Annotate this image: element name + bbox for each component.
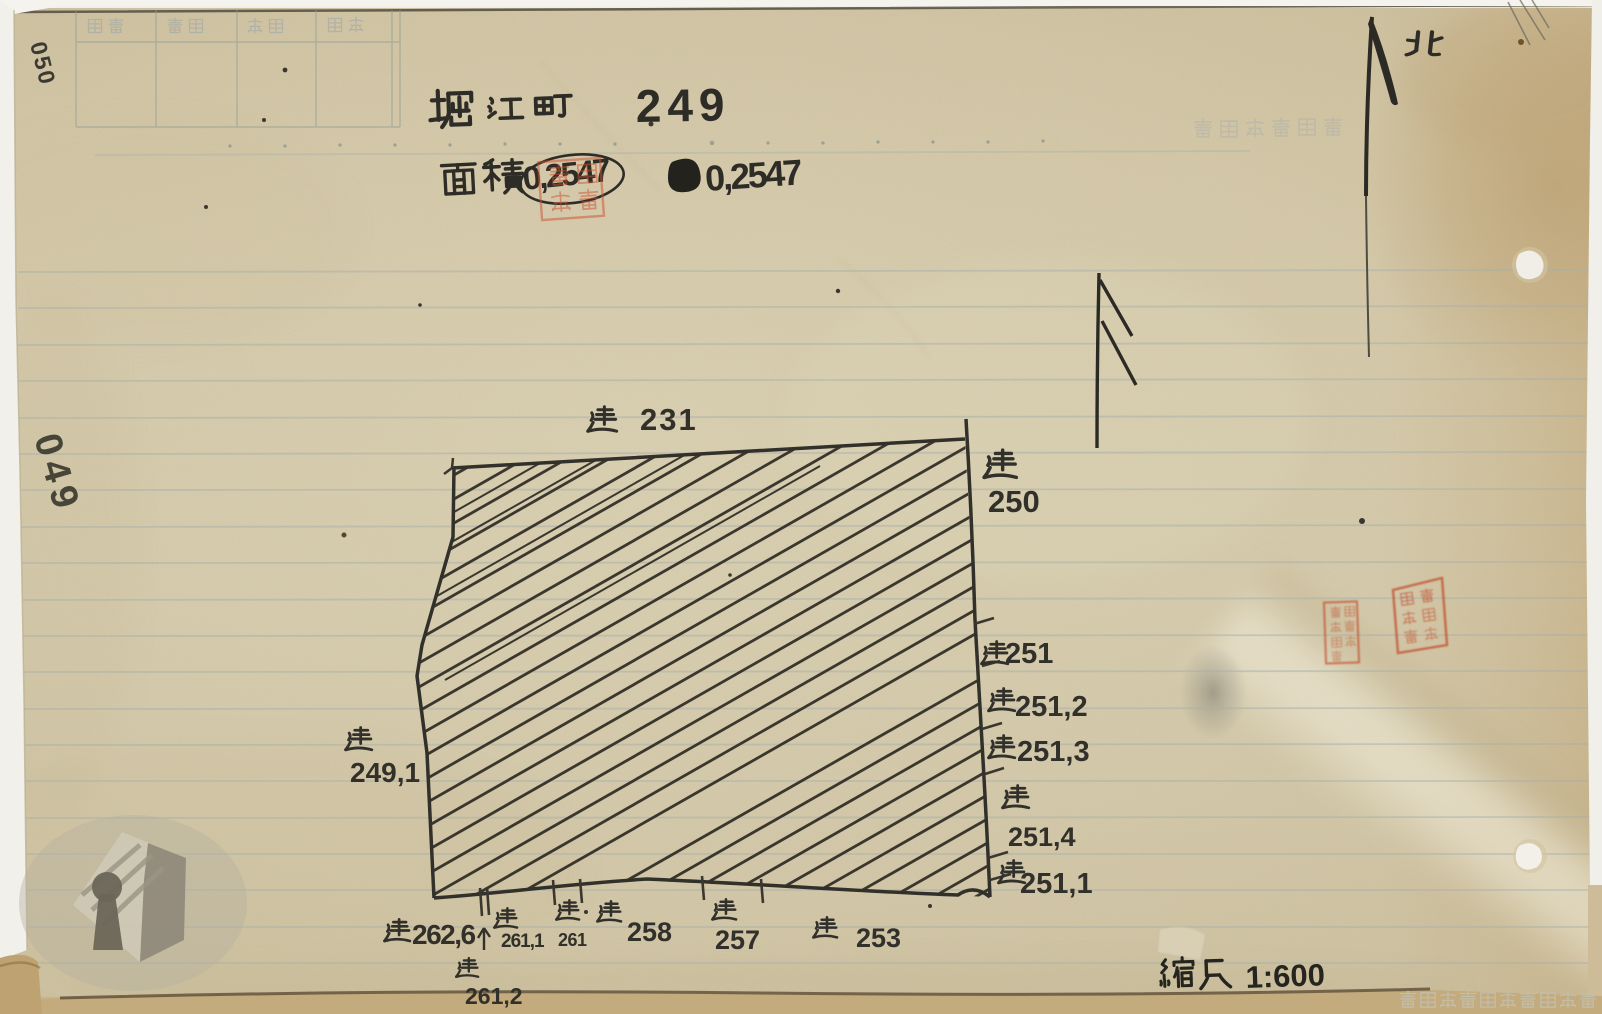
svg-text:251,3: 251,3 [1017,736,1090,768]
svg-text:258: 258 [627,917,672,947]
svg-text:262,6: 262,6 [412,919,475,950]
svg-text:251,1: 251,1 [1020,868,1093,900]
svg-text:251,4: 251,4 [1008,822,1076,852]
svg-text:251,2: 251,2 [1015,691,1088,723]
svg-text:249,1: 249,1 [350,757,420,788]
svg-text:257: 257 [715,925,760,955]
svg-text:261,2: 261,2 [465,983,523,1009]
svg-text:253: 253 [856,923,901,953]
svg-text:1:600: 1:600 [1245,957,1325,995]
svg-text:0,2547: 0,2547 [704,151,803,199]
svg-text:250: 250 [988,484,1040,519]
svg-text:231: 231 [640,402,698,437]
svg-text:251: 251 [1005,638,1053,670]
svg-text:261,1: 261,1 [501,931,545,952]
svg-text:261: 261 [558,930,587,950]
